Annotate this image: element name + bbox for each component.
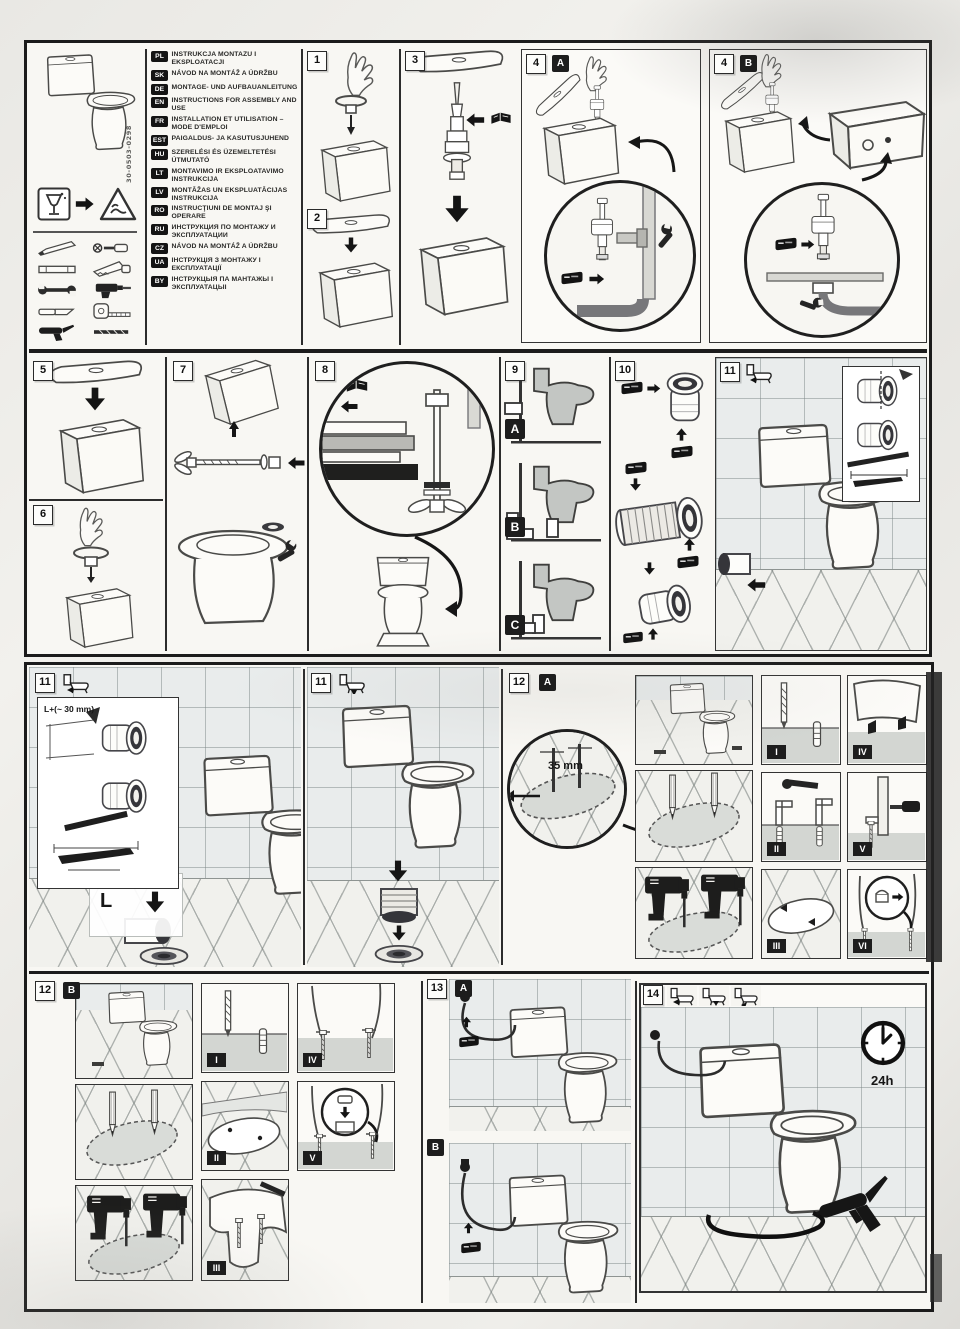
language-code-badge: LV	[151, 187, 168, 198]
position-toilet-frame	[635, 675, 753, 765]
screwdriver-tool-icon	[88, 239, 136, 257]
outlet-type-a-mini-icon	[667, 986, 697, 1006]
button-fit-drawing	[29, 503, 163, 651]
saw-tool-icon	[88, 260, 136, 278]
substep-roman-badge: I	[207, 1053, 226, 1067]
drill-bit-tool-icon	[88, 323, 136, 341]
step-number-badge: 3	[405, 51, 425, 71]
cut-length-inset: L+(~ 30 mm)	[37, 697, 179, 889]
side-valve-detail-drawing	[547, 183, 693, 329]
step-number-badge: 8	[315, 361, 335, 381]
supply-hose-top-scene	[449, 979, 631, 1131]
arrow-down-icon	[144, 888, 166, 916]
connector-cut-drawing	[843, 367, 918, 500]
outlet-type-c-mini-icon	[731, 986, 761, 1006]
divider	[501, 669, 503, 965]
variant-b-badge: B	[63, 982, 80, 999]
divider	[303, 669, 305, 965]
drill-depth-drawing	[510, 732, 624, 846]
step-2-panel: 2	[305, 207, 397, 347]
substep-frame: IV	[847, 675, 927, 765]
drill-tool-icon	[88, 281, 136, 299]
outlet-type-c-badge: C	[505, 615, 525, 635]
step-number-badge: 12	[35, 981, 55, 1001]
substep-roman-badge: IV	[853, 745, 872, 759]
substep-frame: I	[201, 983, 289, 1073]
product-toilet-drawing	[31, 53, 139, 153]
substep-frame: III	[761, 869, 841, 959]
drilling-drawing	[76, 1186, 192, 1280]
pencil-tool-icon	[33, 239, 81, 257]
substep-roman-badge: V	[853, 842, 872, 856]
language-code-badge: DE	[151, 84, 168, 95]
language-item: ROINSTRUCŢIUNI DE MONTAJ ŞI OPERARE	[151, 205, 299, 221]
substep-frame: V	[297, 1081, 395, 1171]
language-code-badge: BY	[151, 276, 168, 287]
language-code-badge: SK	[151, 70, 168, 81]
language-item: FRINSTALLATION ET UTILISATION – MODE D'E…	[151, 116, 299, 132]
hose-drawing	[449, 979, 631, 1131]
language-label: ИНСТРУКЦИЯ ПО МОНТАЖУ И ЭКСПЛУАТАЦИИ	[172, 224, 300, 240]
language-item: PLINSTRUKCJA MONTAŻU I EKSPLOATACJI	[151, 51, 299, 67]
bottom-valve-detail-circle	[744, 182, 900, 338]
substep-frame: V	[847, 772, 927, 862]
step-12a-panel: 12 A 35 mm	[505, 667, 929, 967]
language-label: INSTRUCŢIUNI DE MONTAJ ŞI OPERARE	[172, 205, 300, 221]
substep-frame: IV	[297, 983, 395, 1073]
language-title-list: PLINSTRUKCJA MONTAŻU I EKSPLOATACJI SKNÁ…	[151, 51, 299, 347]
marking-drawing	[76, 1085, 192, 1179]
cut-length-label: L+(~ 30 mm)	[44, 704, 94, 714]
language-item: LVMONTĀŽAS UN EKSPLUATĀCIJAS INSTRUKCIJA	[151, 187, 299, 203]
divider	[499, 357, 501, 651]
step-8-panel: 8	[311, 357, 497, 651]
part-code: 30-0503-0298	[125, 125, 133, 183]
language-label: NÁVOD NA MONTÁŽ A ÚDRŽBU	[172, 243, 278, 251]
outlet-type-a-mini-icon	[61, 672, 91, 694]
step-number-badge: 14	[643, 985, 663, 1005]
language-label: INSTRUCTIONS FOR ASSEMBLY AND USE	[172, 97, 300, 113]
language-code-badge: LT	[151, 168, 168, 179]
scan-edge-artifact	[926, 672, 942, 962]
language-code-badge: RO	[151, 205, 168, 216]
cut-detail-inset	[842, 366, 920, 502]
bottom-valve-detail-drawing	[747, 185, 897, 335]
arrow-right-icon	[75, 197, 95, 211]
step-number-badge: 11	[35, 673, 55, 693]
step-7-panel: 7	[169, 357, 305, 651]
language-code-badge: RU	[151, 224, 168, 235]
language-code-badge: UA	[151, 257, 168, 268]
language-code-badge: HU	[151, 149, 168, 160]
fragile-icon	[37, 187, 71, 221]
step-9-panel: 9 A B C	[503, 357, 607, 651]
top-section: 30-0503-0298 PLINSTRUKCJA MONTAŻU I EKSP…	[24, 40, 932, 657]
step-14-panel: 14 24h	[639, 983, 927, 1293]
language-code-badge: CZ	[151, 243, 168, 254]
connector-options-drawing	[613, 357, 711, 651]
variant-b-badge: B	[427, 1139, 444, 1156]
detail-link-drawing	[311, 357, 497, 651]
substep-roman-badge: IV	[303, 1053, 322, 1067]
language-label: INSTRUKCJA MONTAŻU I EKSPLOATACJI	[172, 51, 300, 67]
vertical-connector-scene	[307, 667, 499, 967]
bottom-section: L L+(~ 30 mm) 11	[24, 662, 934, 1312]
intro-divider	[33, 231, 137, 233]
language-item: BYІНСТРУКЦЫЯ ПА МАНТАЖЫ І ЭКСПЛУАТАЦЫІ	[151, 276, 299, 292]
language-code-badge: EST	[151, 135, 168, 146]
variant-b-badge: B	[740, 55, 757, 72]
drilling-drawing	[636, 868, 752, 958]
substep-roman-badge: V	[303, 1151, 322, 1165]
language-code-badge: FR	[151, 116, 168, 127]
step-4a-panel: 4 A	[521, 49, 701, 343]
substep-frame: III	[201, 1179, 289, 1281]
scan-edge-artifact	[930, 1254, 942, 1302]
scanned-leaflet-page: 30-0503-0298 PLINSTRUKCJA MONTAŻU I EKSP…	[0, 0, 960, 1329]
flush-valve-install-drawing	[403, 47, 515, 345]
tape-measure-tool-icon	[88, 302, 136, 320]
step-6-panel: 6	[29, 503, 163, 651]
language-label: INSTALLATION ET UTILISATION – MODE D'EMP…	[172, 116, 300, 132]
language-item: ESTPAIGALDUS- JA KASUTUSJUHEND	[151, 135, 299, 146]
divider	[307, 357, 309, 651]
step-13-panel: 13 A B	[425, 977, 633, 1307]
divider	[421, 981, 423, 1303]
step-3-panel: 3	[403, 47, 515, 347]
row-divider-band	[29, 349, 927, 353]
substep-frame: I	[761, 675, 841, 765]
outlet-type-b-mini-icon	[699, 986, 729, 1006]
step-number-badge: 11	[311, 673, 331, 693]
divider	[609, 357, 611, 651]
step-number-badge: 9	[505, 361, 525, 381]
variant-a-badge: A	[539, 674, 556, 691]
drill-depth-detail-circle: 35 mm	[507, 729, 627, 849]
injury-warning-icon	[99, 187, 137, 221]
substep-frame: II	[761, 772, 841, 862]
language-label: MONTAGE- UND AUFBAUANLEITUNG	[172, 84, 298, 92]
sealing-scene-drawing	[641, 985, 926, 1290]
step-number-badge: 4	[526, 54, 546, 74]
wrench-tool-icon	[33, 281, 81, 299]
divider	[145, 49, 147, 345]
step-11-vertical-panel: 11	[307, 667, 499, 967]
language-item: LTMONTAVIMO IR EKSPLOATAVIMO INSTRUKCIJA	[151, 168, 299, 184]
substep-roman-badge: III	[767, 939, 786, 953]
length-mark-label: L	[100, 890, 112, 913]
toilet-outline-drawing	[636, 676, 752, 764]
divider	[29, 499, 163, 501]
language-item: RUИНСТРУКЦИЯ ПО МОНТАЖУ И ЭКСПЛУАТАЦИИ	[151, 224, 299, 240]
drill-depth-label: 35 mm	[548, 760, 583, 772]
drill-holes-frame	[635, 867, 753, 959]
step-number-badge: 6	[33, 505, 53, 525]
marking-drawing	[636, 771, 752, 861]
side-valve-detail-circle	[544, 180, 696, 332]
step-number-badge: 13	[427, 979, 447, 999]
outlet-type-b-mini-icon	[337, 672, 367, 694]
intro-column: 30-0503-0298	[29, 47, 143, 347]
substep-roman-badge: VI	[853, 939, 872, 953]
divider	[165, 357, 167, 651]
step-10-panel: 10	[613, 357, 711, 651]
language-label: ІНСТРУКЦІЯ З МОНТАЖУ І ЕКСПЛУАТАЦІЇ	[172, 257, 300, 273]
language-label: ІНСТРУКЦЫЯ ПА МАНТАЖЫ І ЭКСПЛУАТАЦЫІ	[172, 276, 300, 292]
step-11-horizontal-panel: L L+(~ 30 mm) 11	[29, 667, 301, 967]
drill-holes-frame	[75, 1185, 193, 1281]
step-12b-panel: 12 B	[29, 977, 419, 1307]
cure-time-label: 24h	[871, 1073, 893, 1088]
step-1-panel: 1	[305, 47, 397, 205]
language-code-badge: EN	[151, 97, 168, 108]
row-divider-band	[29, 971, 929, 974]
divider	[635, 981, 637, 1303]
substep-roman-badge: II	[767, 842, 786, 856]
language-item: ENINSTRUCTIONS FOR ASSEMBLY AND USE	[151, 97, 299, 113]
language-label: SZERELÉSI ÉS ÜZEMELTETÉSI ÚTMUTATÓ	[172, 149, 300, 165]
language-label: MONTAVIMO IR EKSPLOATAVIMO INSTRUKCIJA	[172, 168, 300, 184]
position-toilet-frame	[75, 983, 193, 1079]
cistern-to-bowl-drawing	[169, 357, 305, 651]
language-item: UAІНСТРУКЦІЯ З МОНТАЖУ І ЕКСПЛУАТАЦІЇ	[151, 257, 299, 273]
variant-a-badge: A	[552, 55, 569, 72]
outlet-types-drawing	[503, 357, 607, 651]
step-number-badge: 4	[714, 54, 734, 74]
required-tools-grid	[33, 239, 139, 341]
toilet-outline-drawing	[76, 984, 192, 1078]
language-label: MONTĀŽAS UN EKSPLUATĀCIJAS INSTRUKCIJA	[172, 187, 300, 203]
level-tool-icon	[33, 260, 81, 278]
substep-roman-badge: I	[767, 745, 786, 759]
knife-tool-icon	[33, 302, 81, 320]
mark-holes-frame	[75, 1084, 193, 1180]
outlet-type-a-badge: A	[505, 419, 525, 439]
language-item: HUSZERELÉSI ÉS ÜZEMELTETÉSI ÚTMUTATÓ	[151, 149, 299, 165]
language-item: SKNÁVOD NA MONTÁŽ A ÚDRŽBU	[151, 70, 299, 81]
substep-roman-badge: II	[207, 1151, 226, 1165]
step-number-badge: 7	[173, 361, 193, 381]
step-5-panel: 5	[29, 357, 163, 497]
substep-frame: II	[201, 1081, 289, 1171]
substep-roman-badge: III	[207, 1261, 226, 1275]
divider	[399, 49, 401, 345]
mark-holes-frame	[635, 770, 753, 862]
step-number-badge: 1	[307, 51, 327, 71]
language-label: NÁVOD NA MONTÁŽ A ÚDRŽBU	[172, 70, 278, 78]
step-number-badge: 10	[615, 361, 635, 381]
supply-hose-bottom-scene	[449, 1143, 631, 1303]
variant-a-badge: A	[455, 980, 472, 997]
substep-frame: VI	[847, 869, 927, 959]
outlet-type-a-mini-icon	[744, 362, 774, 384]
step-4b-panel: 4 B	[709, 49, 927, 343]
caulk-gun-tool-icon	[33, 323, 81, 341]
cut-length-drawing	[38, 698, 177, 887]
language-code-badge: PL	[151, 51, 168, 62]
outlet-type-b-badge: B	[505, 517, 525, 537]
step-number-badge: 2	[307, 209, 327, 229]
language-item: CZNÁVOD NA MONTÁŽ A ÚDRŽBU	[151, 243, 299, 254]
step-number-badge: 11	[720, 362, 740, 382]
step-number-badge: 12	[509, 673, 529, 693]
hose-drawing	[449, 1143, 631, 1303]
step-11-panel: 11	[715, 357, 927, 651]
divider	[301, 49, 303, 345]
step-number-badge: 5	[33, 361, 53, 381]
language-label: PAIGALDUS- JA KASUTUSJUHEND	[172, 135, 290, 143]
language-item: DEMONTAGE- UND AUFBAUANLEITUNG	[151, 84, 299, 95]
